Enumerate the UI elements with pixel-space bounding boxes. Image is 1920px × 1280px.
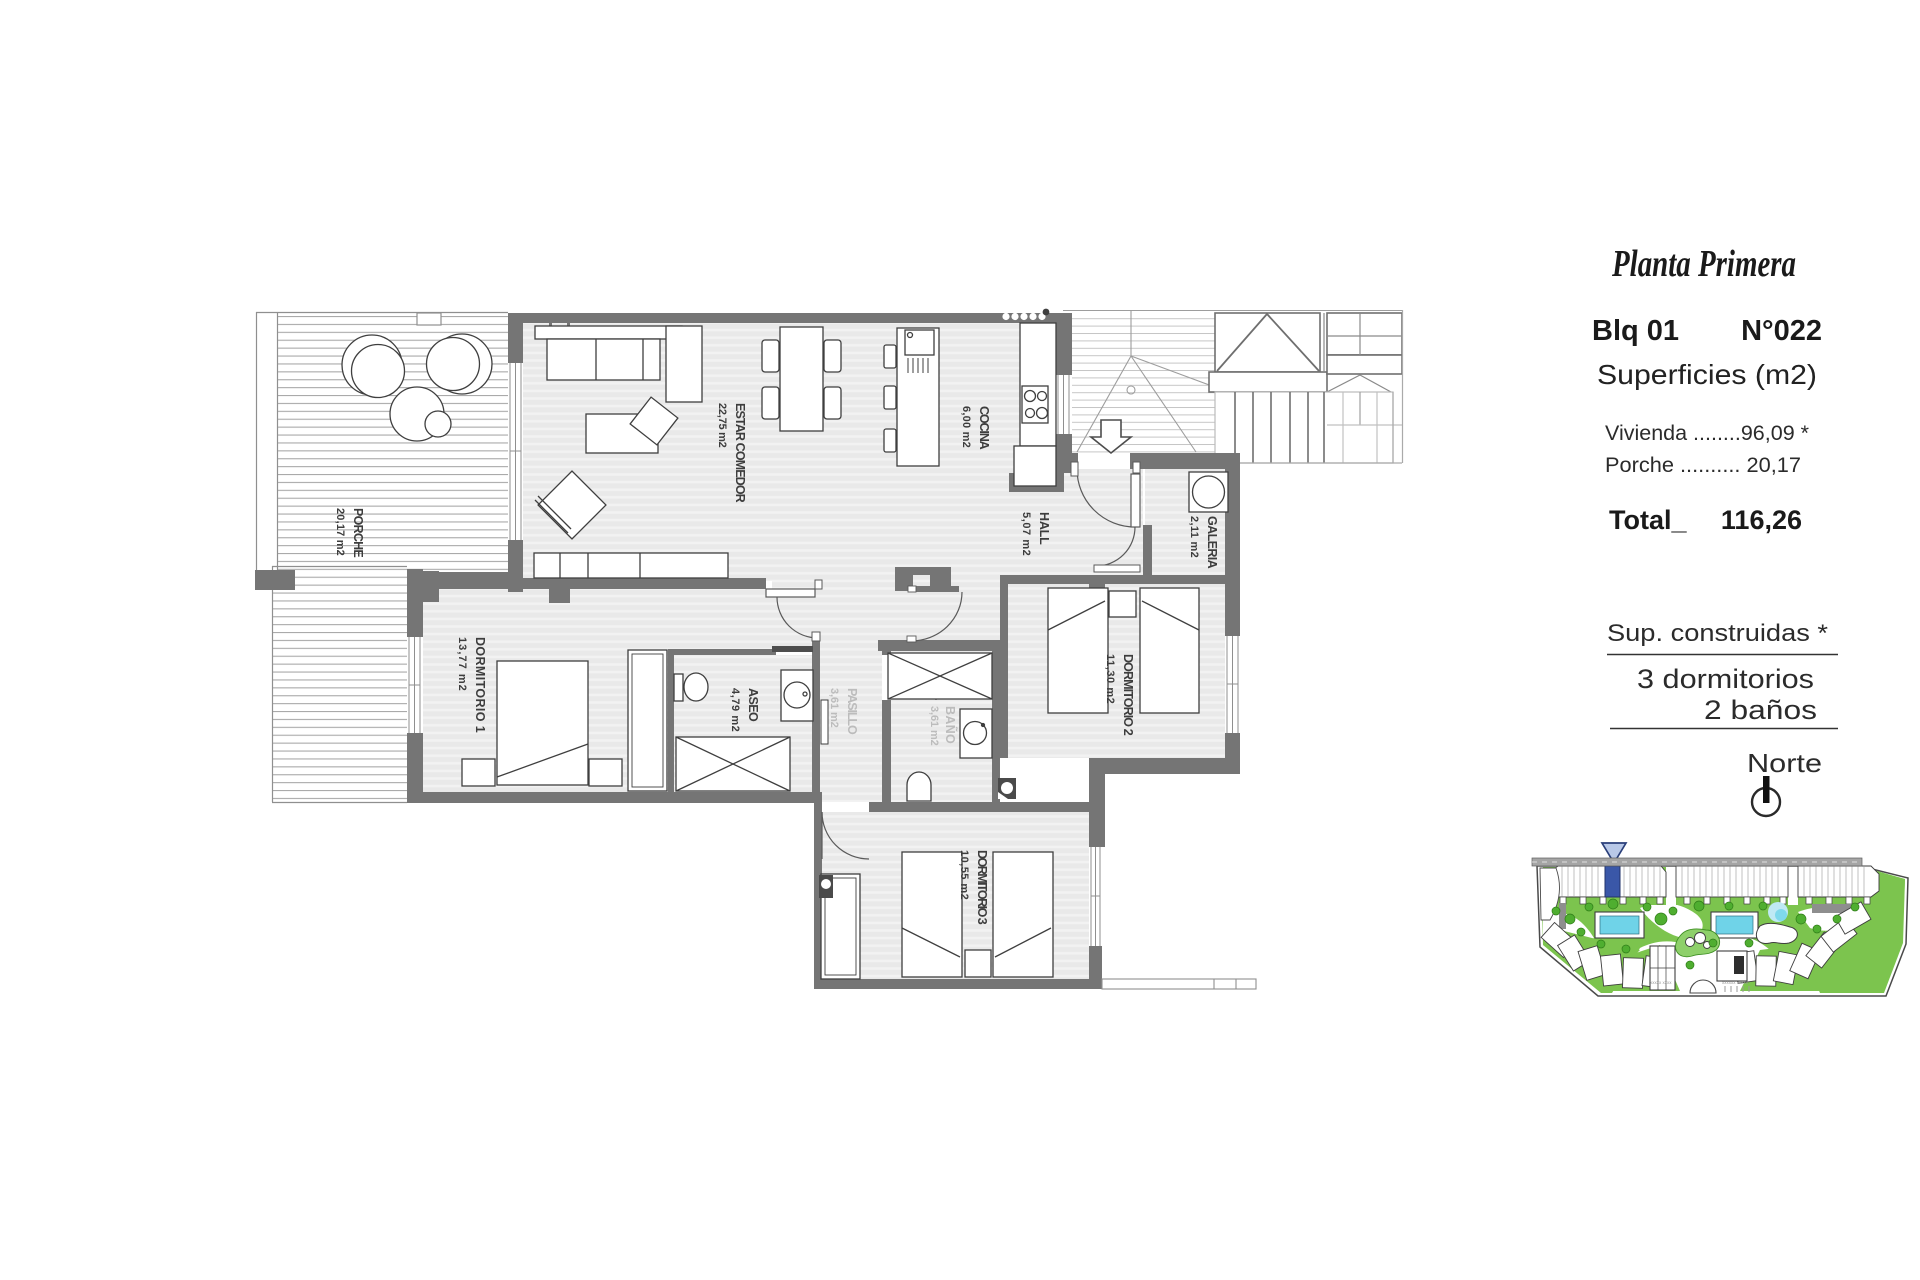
svg-text:N°022: N°022: [1741, 315, 1822, 347]
svg-text:Vivienda ........96,09 *: Vivienda ........96,09 *: [1605, 422, 1809, 445]
svg-text:2,11 m2: 2,11 m2: [1188, 516, 1200, 558]
svg-text:3,61 m2: 3,61 m2: [828, 688, 840, 728]
svg-text:5,07 m2: 5,07 m2: [1020, 512, 1032, 556]
svg-text:10,55 m2: 10,55 m2: [958, 850, 970, 900]
svg-text:GALERIA: GALERIA: [1205, 516, 1219, 569]
svg-text:DORMITORIO 3: DORMITORIO 3: [975, 850, 989, 925]
svg-text:Superficies (m2): Superficies (m2): [1597, 359, 1817, 390]
svg-text:4,79 m2: 4,79 m2: [729, 688, 741, 732]
svg-text:Norte: Norte: [1747, 748, 1822, 778]
svg-text:xxxxx xxxx: xxxxx xxxx: [1650, 980, 1672, 985]
svg-text:116,26: 116,26: [1721, 505, 1802, 535]
svg-text:2 baños: 2 baños: [1704, 695, 1817, 725]
svg-text:PORCHE: PORCHE: [351, 508, 365, 558]
svg-text:3,61 m2: 3,61 m2: [928, 706, 940, 746]
svg-text:DORMITORIO 2: DORMITORIO 2: [1121, 654, 1135, 736]
svg-text:Sup. construidas *: Sup. construidas *: [1607, 620, 1828, 647]
svg-text:Planta Primera: Planta Primera: [1611, 243, 1796, 285]
svg-text:BAÑO: BAÑO: [943, 706, 958, 744]
svg-text:Total_: Total_: [1609, 505, 1687, 535]
svg-text:20,17 m2: 20,17 m2: [334, 508, 346, 556]
svg-text:PASILLO: PASILLO: [845, 688, 859, 735]
svg-text:13,77 m2: 13,77 m2: [456, 637, 468, 691]
svg-text:ESTAR COMEDOR: ESTAR COMEDOR: [733, 403, 747, 503]
svg-text:6,00 m2: 6,00 m2: [960, 406, 972, 448]
svg-text:xxxxxx xxxxx: xxxxxx xxxxx: [1722, 980, 1749, 985]
svg-text:DORMITORIO 1: DORMITORIO 1: [473, 637, 487, 733]
svg-text:22,75 m2: 22,75 m2: [716, 403, 728, 448]
svg-text:COCINA: COCINA: [977, 406, 991, 450]
svg-text:ASEO: ASEO: [746, 688, 760, 722]
svg-text:11,30 m2: 11,30 m2: [1104, 654, 1116, 704]
svg-text:Blq 01: Blq 01: [1592, 315, 1679, 347]
svg-text:HALL: HALL: [1037, 512, 1051, 545]
svg-text:Porche .......... 20,17: Porche .......... 20,17: [1605, 454, 1801, 477]
svg-text:3 dormitorios: 3 dormitorios: [1637, 664, 1814, 694]
